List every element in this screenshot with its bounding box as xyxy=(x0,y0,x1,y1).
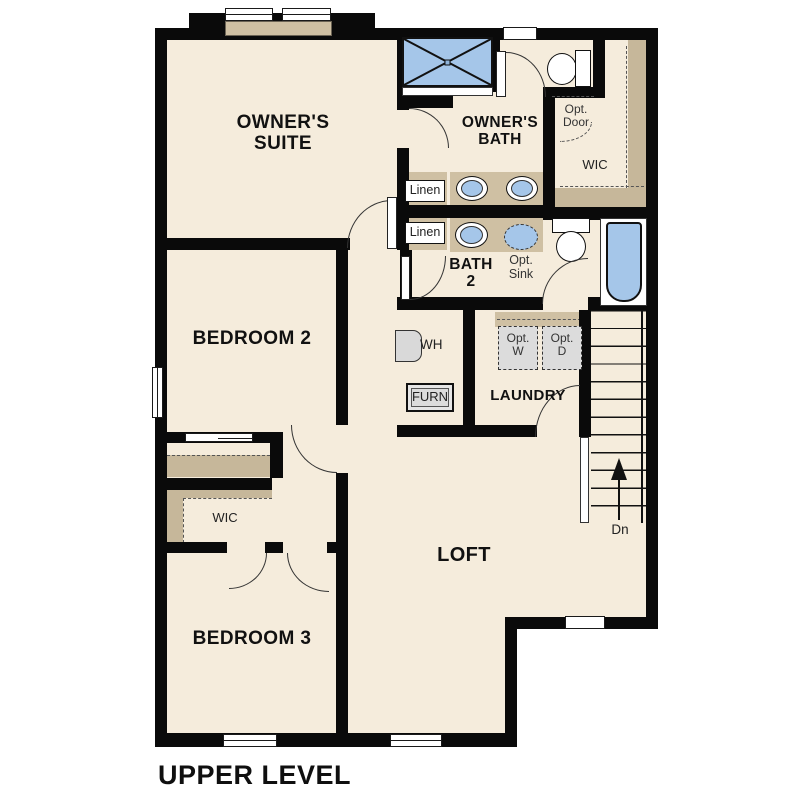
bath2-door-leaf xyxy=(401,256,410,300)
wic-upper-shelf-right xyxy=(628,40,646,210)
optional-door-dash-top xyxy=(552,96,594,97)
bay-window-2 xyxy=(282,8,331,21)
water-heater-label: WH xyxy=(420,337,454,352)
toilet-owners-icon xyxy=(547,53,577,85)
stair-stringer-line xyxy=(641,310,643,523)
wall-wic-lower-south-c xyxy=(327,542,348,553)
stair-arrow-icon xyxy=(611,458,627,480)
bay-window-sill xyxy=(225,21,332,36)
wic-upper-shelf-dash-h xyxy=(560,186,644,187)
stair-railing xyxy=(580,437,589,523)
wall-owners-suite-south xyxy=(167,238,350,250)
linen-upper-label: Linen xyxy=(410,183,441,197)
wall-closet-wic-divider xyxy=(163,478,272,490)
window-bottom-loft xyxy=(390,734,442,747)
laundry-label: LAUNDRY xyxy=(484,388,572,405)
wall-vanity-divider xyxy=(397,205,543,218)
wic-lower-label: WIC xyxy=(203,511,247,526)
owners-suite-label: OWNER'S SUITE xyxy=(218,112,348,155)
bedroom2-label: BEDROOM 2 xyxy=(168,328,336,349)
wall-toilet-nook-east xyxy=(593,40,605,98)
wall-laundry-south xyxy=(397,425,537,437)
bath2-sink-basin xyxy=(460,226,483,244)
bath2-label: BATH 2 xyxy=(444,256,498,291)
wall-step-vertical xyxy=(505,617,517,747)
wall-bedrooms-east-b xyxy=(336,473,348,542)
wall-bedrooms-east-a xyxy=(336,248,348,425)
wall-right xyxy=(646,28,658,629)
opt-sink-label: Opt. Sink xyxy=(499,253,543,281)
shower-icon xyxy=(402,37,493,87)
closet-shelf-bedroom2 xyxy=(167,455,270,477)
toilet-owners-tank xyxy=(575,50,591,87)
wall-bedrooms-east-c xyxy=(336,553,348,737)
wall-wic-lower-south-a xyxy=(163,542,227,553)
wall-bath2-south-a xyxy=(397,297,543,310)
linen-upper-label-box: Linen xyxy=(405,180,445,202)
owners-suite-door-leaf xyxy=(387,197,397,249)
window-left-bedroom2 xyxy=(152,367,163,418)
plan-title: UPPER LEVEL xyxy=(158,760,351,791)
wall-laundry-divider xyxy=(463,310,475,425)
optional-washer-icon: Opt. W xyxy=(498,326,538,370)
wic-upper-shelf-dash-v xyxy=(626,46,627,188)
owners-bath-label: OWNER'S BATH xyxy=(450,114,550,149)
linen-lower-label: Linen xyxy=(410,225,441,239)
optional-dryer-label: Opt. D xyxy=(547,332,577,359)
optional-washer-label: Opt. W xyxy=(503,332,533,359)
linen-lower-label-box: Linen xyxy=(405,222,445,244)
wall-shower-stub xyxy=(397,95,453,108)
water-heater-icon xyxy=(395,330,422,362)
optional-dryer-icon: Opt. D xyxy=(542,326,582,370)
bedroom3-label: BEDROOM 3 xyxy=(168,628,336,649)
window-step xyxy=(565,616,605,629)
floorplan-upper-level: Linen Linen Opt. W Opt. D xyxy=(0,0,810,810)
stair-arrow-stem xyxy=(618,478,620,520)
loft-label: LOFT xyxy=(426,544,502,566)
shower-curb xyxy=(402,87,493,96)
toilet-nook-door-leaf xyxy=(496,51,506,97)
stair-dn-label: Dn xyxy=(601,522,639,537)
washer-dryer-shelf xyxy=(495,312,585,327)
owners-sink-2-basin xyxy=(511,180,533,197)
wall-wic-lower-south-b xyxy=(265,542,283,553)
wic-upper-label: WIC xyxy=(573,158,617,173)
closet-sliding-door xyxy=(185,433,253,442)
bay-window-1 xyxy=(225,8,273,21)
window-top-bath xyxy=(503,27,537,40)
window-bottom-bedroom3 xyxy=(223,734,277,747)
bathtub-icon xyxy=(606,222,642,302)
owners-sink-1-basin xyxy=(461,180,483,197)
wall-vestibule-east xyxy=(270,432,283,478)
furnace-label: FURN xyxy=(406,390,454,405)
opt-door-label: Opt. Door xyxy=(554,103,598,130)
optional-sink-icon xyxy=(504,224,538,250)
